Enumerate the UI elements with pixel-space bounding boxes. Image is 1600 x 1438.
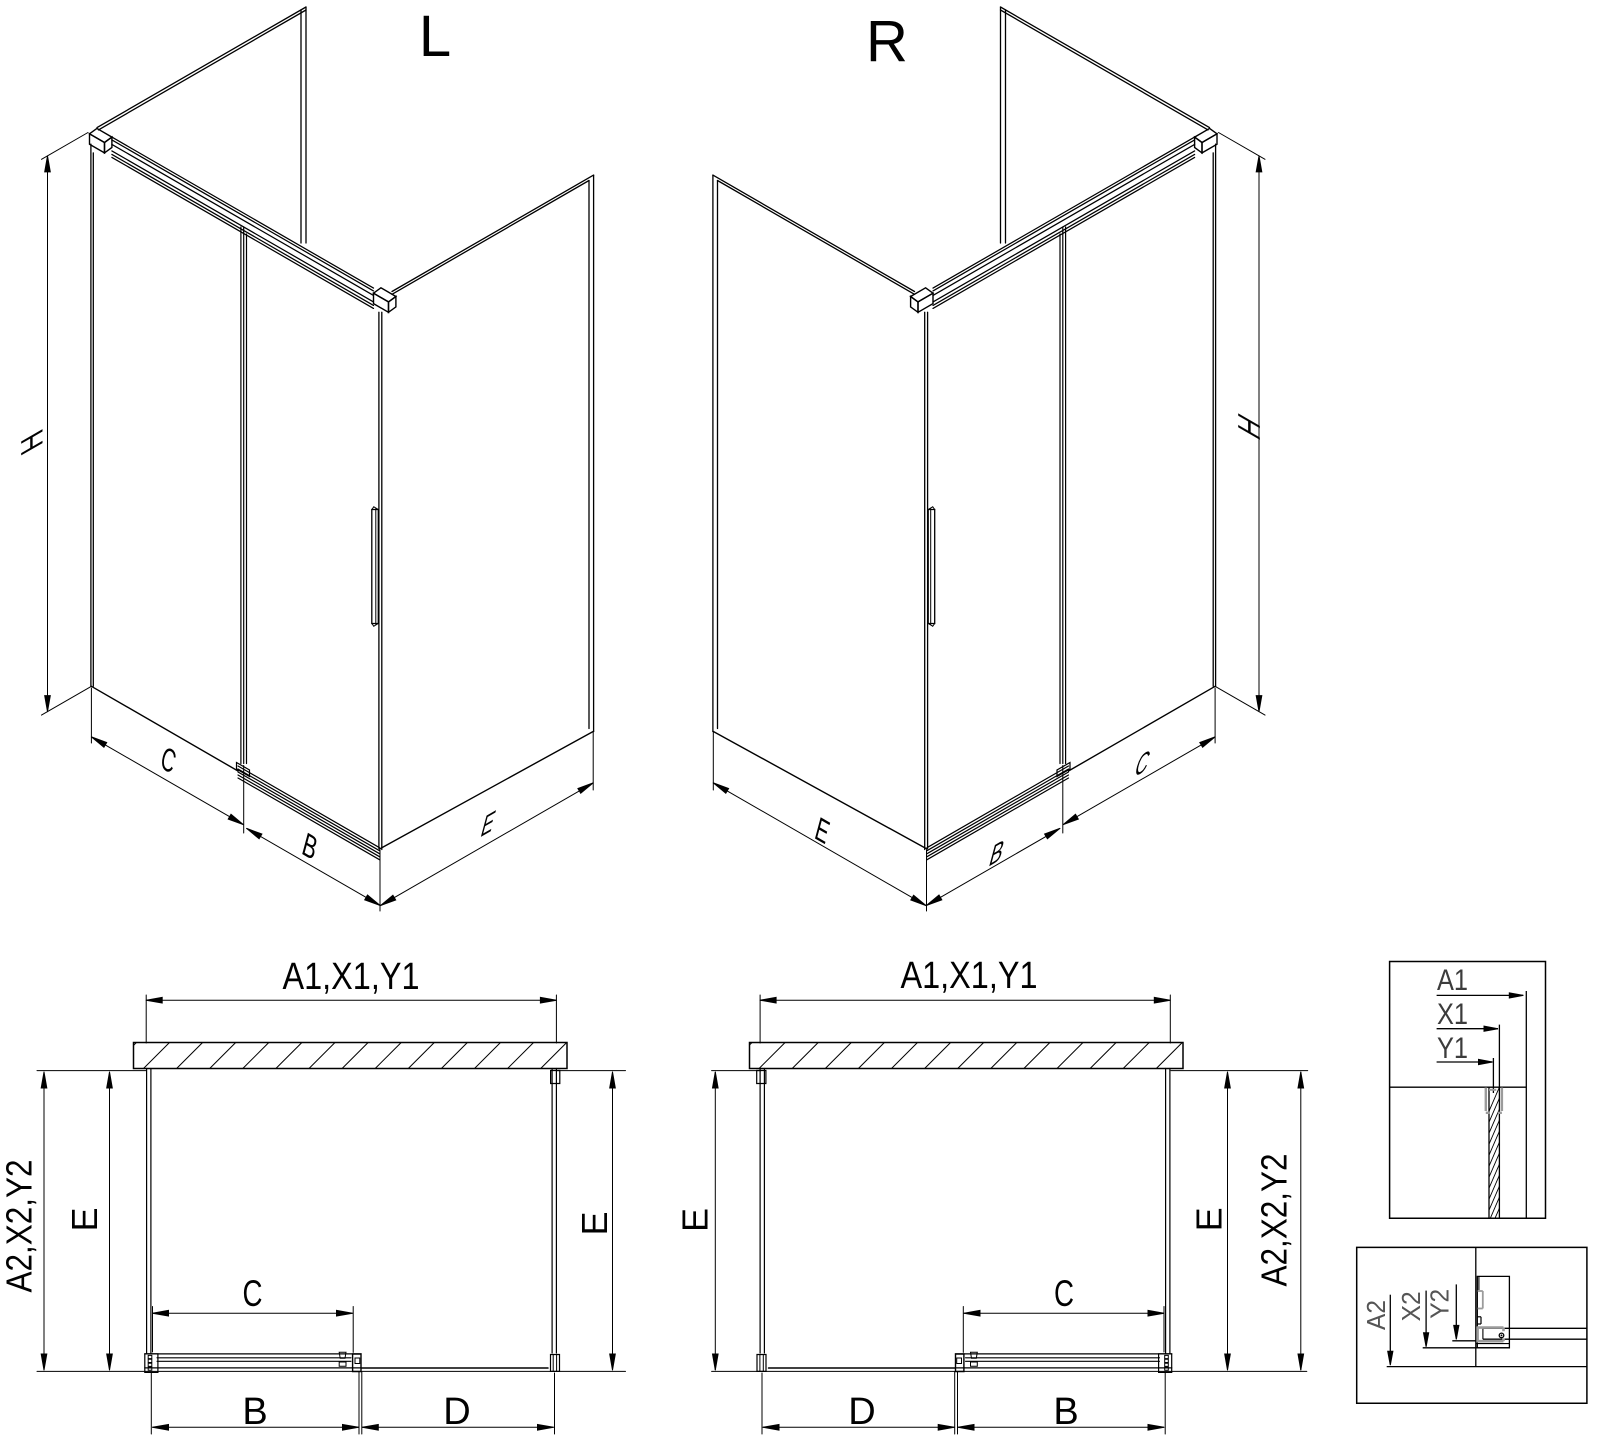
svg-text:B: B <box>242 1391 267 1433</box>
svg-text:E: E <box>64 1207 105 1231</box>
svg-text:E: E <box>1188 1207 1229 1231</box>
svg-text:E: E <box>574 1211 615 1235</box>
svg-text:A1,X1,Y1: A1,X1,Y1 <box>901 955 1038 997</box>
svg-text:A1: A1 <box>1437 964 1468 997</box>
svg-text:D: D <box>848 1391 875 1433</box>
svg-text:A2,X2,Y2: A2,X2,Y2 <box>1254 1154 1295 1287</box>
svg-text:A2: A2 <box>1361 1300 1391 1330</box>
svg-text:R: R <box>866 9 908 74</box>
svg-text:X2: X2 <box>1396 1291 1426 1321</box>
svg-text:Y1: Y1 <box>1437 1032 1468 1065</box>
svg-text:C: C <box>1054 1273 1074 1314</box>
svg-text:B: B <box>1053 1391 1078 1433</box>
svg-text:A2,X2,Y2: A2,X2,Y2 <box>0 1160 40 1293</box>
svg-text:C: C <box>243 1273 263 1314</box>
svg-text:D: D <box>443 1391 470 1433</box>
svg-text:X1: X1 <box>1437 998 1468 1031</box>
svg-text:A1,X1,Y1: A1,X1,Y1 <box>283 956 420 998</box>
svg-text:E: E <box>675 1208 716 1232</box>
svg-text:L: L <box>419 4 451 69</box>
svg-text:Y2: Y2 <box>1425 1289 1455 1319</box>
